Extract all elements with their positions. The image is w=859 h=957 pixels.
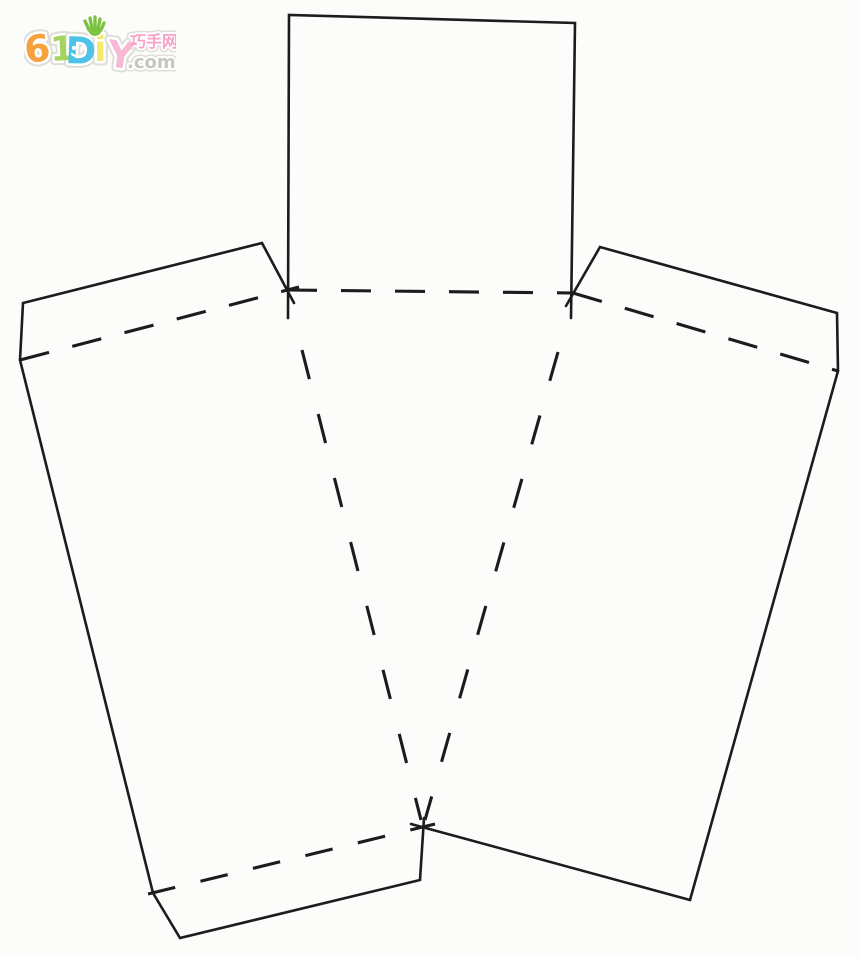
right-lid-flap-outline: [566, 247, 838, 371]
left-lid-fold: [20, 287, 299, 360]
right-lid-fold: [573, 293, 838, 371]
center-left-fold: [302, 350, 421, 820]
fold-lines-group: [20, 287, 838, 894]
cut-lines-group: [20, 15, 838, 938]
top-flap-square-outline: [288, 15, 575, 318]
center-right-fold: [425, 352, 558, 820]
template-diagram: [0, 0, 859, 957]
right-panel-bottom-edge: [411, 824, 690, 900]
left-panel-side-edge: [20, 360, 153, 893]
top-flap-fold: [287, 290, 573, 293]
left-lid-flap-outline: [20, 243, 294, 360]
craft-template-scan: 6611DDiiYY巧手网巧手网.com.com 61DiY巧手网.com: [0, 0, 859, 957]
right-panel-side-edge: [690, 371, 838, 900]
bottom-flap-fold: [148, 824, 435, 894]
